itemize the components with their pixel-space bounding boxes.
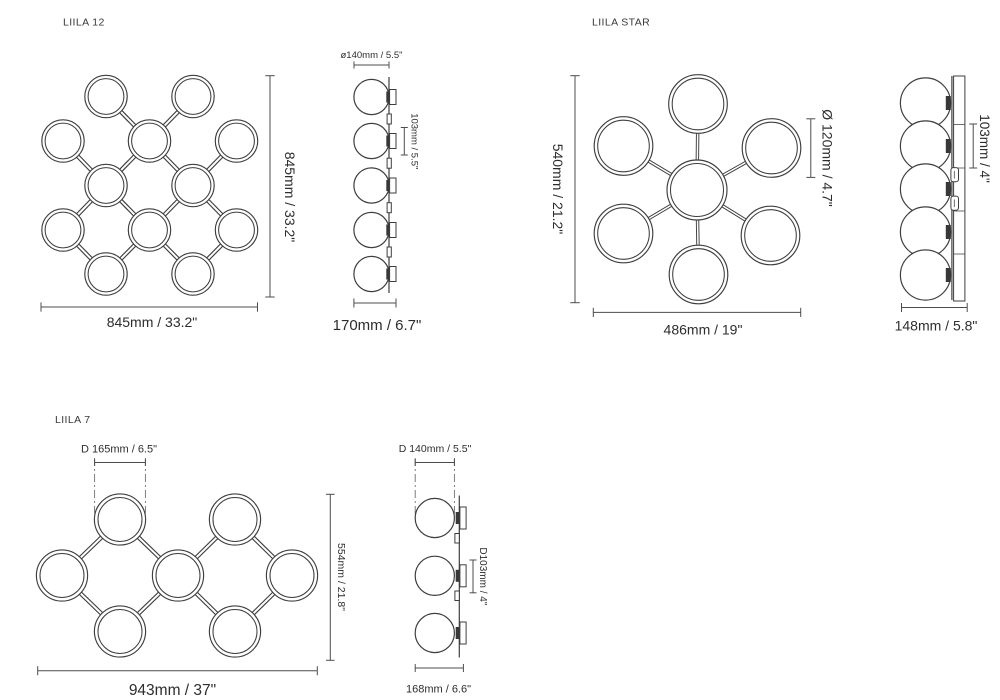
liila12-side-spacing-label: 103mm / 5.5" — [409, 113, 420, 169]
liila-star-front-view — [594, 75, 801, 304]
liila12-side-spacing-dimension: 103mm / 5.5" — [401, 113, 420, 169]
liila7-side-mounts — [455, 507, 466, 644]
drawing-canvas: LIILA 12 845mm / 33.2" 845mm / 33.2" — [0, 0, 1000, 700]
liila-star-side-view: 103mm / 4" 148mm / 5.8" — [895, 76, 992, 334]
liila-star-ring-diameter-label: Ø 120mm / 4.7" — [820, 109, 836, 207]
liila-star-title: LIILA STAR — [592, 17, 650, 29]
liila12-side-diameter-dimension: ø140mm / 5.5" — [341, 50, 403, 69]
liila7-side-spheres — [415, 498, 454, 652]
liila7-side-depth-label: 168mm / 6.6" — [406, 684, 471, 696]
liila12-rings — [42, 75, 258, 295]
liila7-front-view — [36, 494, 317, 657]
liila-star-side-spheres — [900, 78, 950, 300]
liila12-width-label: 845mm / 33.2" — [107, 314, 198, 330]
liila-star-rings — [594, 75, 801, 304]
liila-star-side-depth-label: 148mm / 5.8" — [895, 318, 978, 334]
liila7-side-depth-dimension: 168mm / 6.6" — [406, 664, 471, 696]
liila12-height-dimension: 845mm / 33.2" — [265, 76, 298, 297]
liila12-side-depth-label: 170mm / 6.7" — [333, 317, 422, 334]
liila12-side-depth-dimension: 170mm / 6.7" — [333, 299, 422, 335]
liila12-side-spheres — [354, 79, 389, 291]
liila7-side-view: D 140mm / 5.5" D103mm / 4" — [399, 443, 488, 696]
liila7-side-inner-diameter-dimension: D103mm / 4" — [470, 547, 489, 605]
liila12-title: LIILA 12 — [63, 17, 105, 29]
liila7-width-label: 943mm / 37" — [129, 682, 216, 699]
liila7-rings — [36, 494, 317, 657]
liila7-side-inner-diameter-label: D103mm / 4" — [477, 547, 488, 605]
liila12-width-dimension: 845mm / 33.2" — [41, 302, 258, 330]
liila-star-height-label: 540mm / 21.2" — [550, 144, 566, 235]
liila12-height-label: 845mm / 33.2" — [282, 152, 298, 243]
liila-star-width-label: 486mm / 19" — [664, 322, 743, 338]
liila12-side-diameter-label: ø140mm / 5.5" — [341, 50, 403, 61]
liila-star-side-spacing-dimension: 103mm / 4" — [969, 114, 992, 183]
liila7-title: LIILA 7 — [55, 414, 91, 426]
liila7-ring-diameter-label: D 165mm / 6.5" — [81, 444, 157, 456]
liila-star-side-mounts — [946, 96, 951, 282]
liila-star-height-dimension: 540mm / 21.2" — [550, 76, 580, 303]
liila7-side-diameter-label: D 140mm / 5.5" — [399, 443, 472, 455]
liila-star-side-depth-dimension: 148mm / 5.8" — [895, 303, 978, 334]
spec-sheet-page: LIILA 12 845mm / 33.2" 845mm / 33.2" — [0, 0, 1000, 700]
liila12-side-view: ø140mm / 5.5" 103mm / 5.5" 170mm / 6.7" — [333, 50, 422, 334]
liila-star-ring-diameter-dimension: Ø 120mm / 4.7" — [806, 109, 835, 207]
liila7-width-dimension: 943mm / 37" — [38, 666, 318, 699]
liila-star-width-dimension: 486mm / 19" — [593, 308, 800, 338]
liila-star-side-spacing-label: 103mm / 4" — [977, 114, 992, 183]
liila12-front-view — [42, 75, 258, 295]
liila7-height-label: 554mm / 21.8" — [335, 543, 347, 611]
liila7-height-dimension: 554mm / 21.8" — [326, 494, 347, 660]
